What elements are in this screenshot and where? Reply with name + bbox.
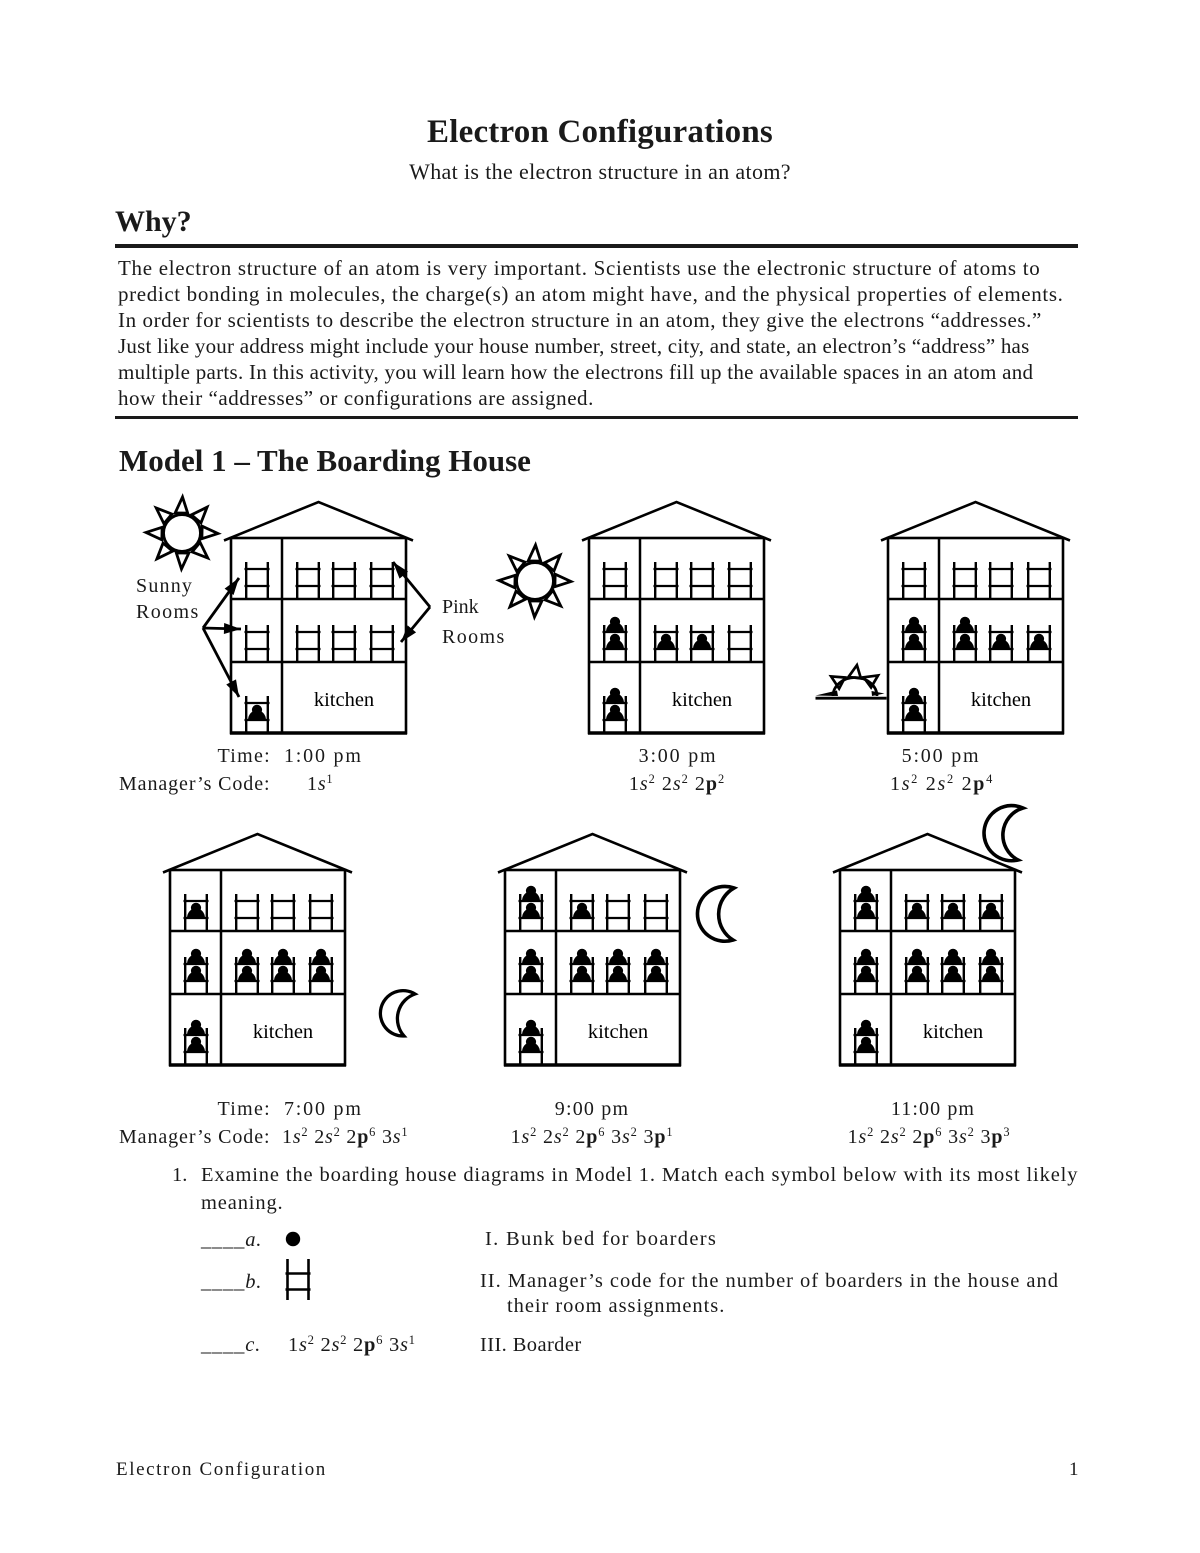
svg-text:kitchen: kitchen [588, 1021, 648, 1043]
svg-text:kitchen: kitchen [672, 689, 732, 711]
svg-text:kitchen: kitchen [314, 689, 374, 711]
svg-text:kitchen: kitchen [923, 1021, 983, 1043]
svg-text:kitchen: kitchen [253, 1021, 313, 1043]
svg-text:kitchen: kitchen [971, 689, 1031, 711]
